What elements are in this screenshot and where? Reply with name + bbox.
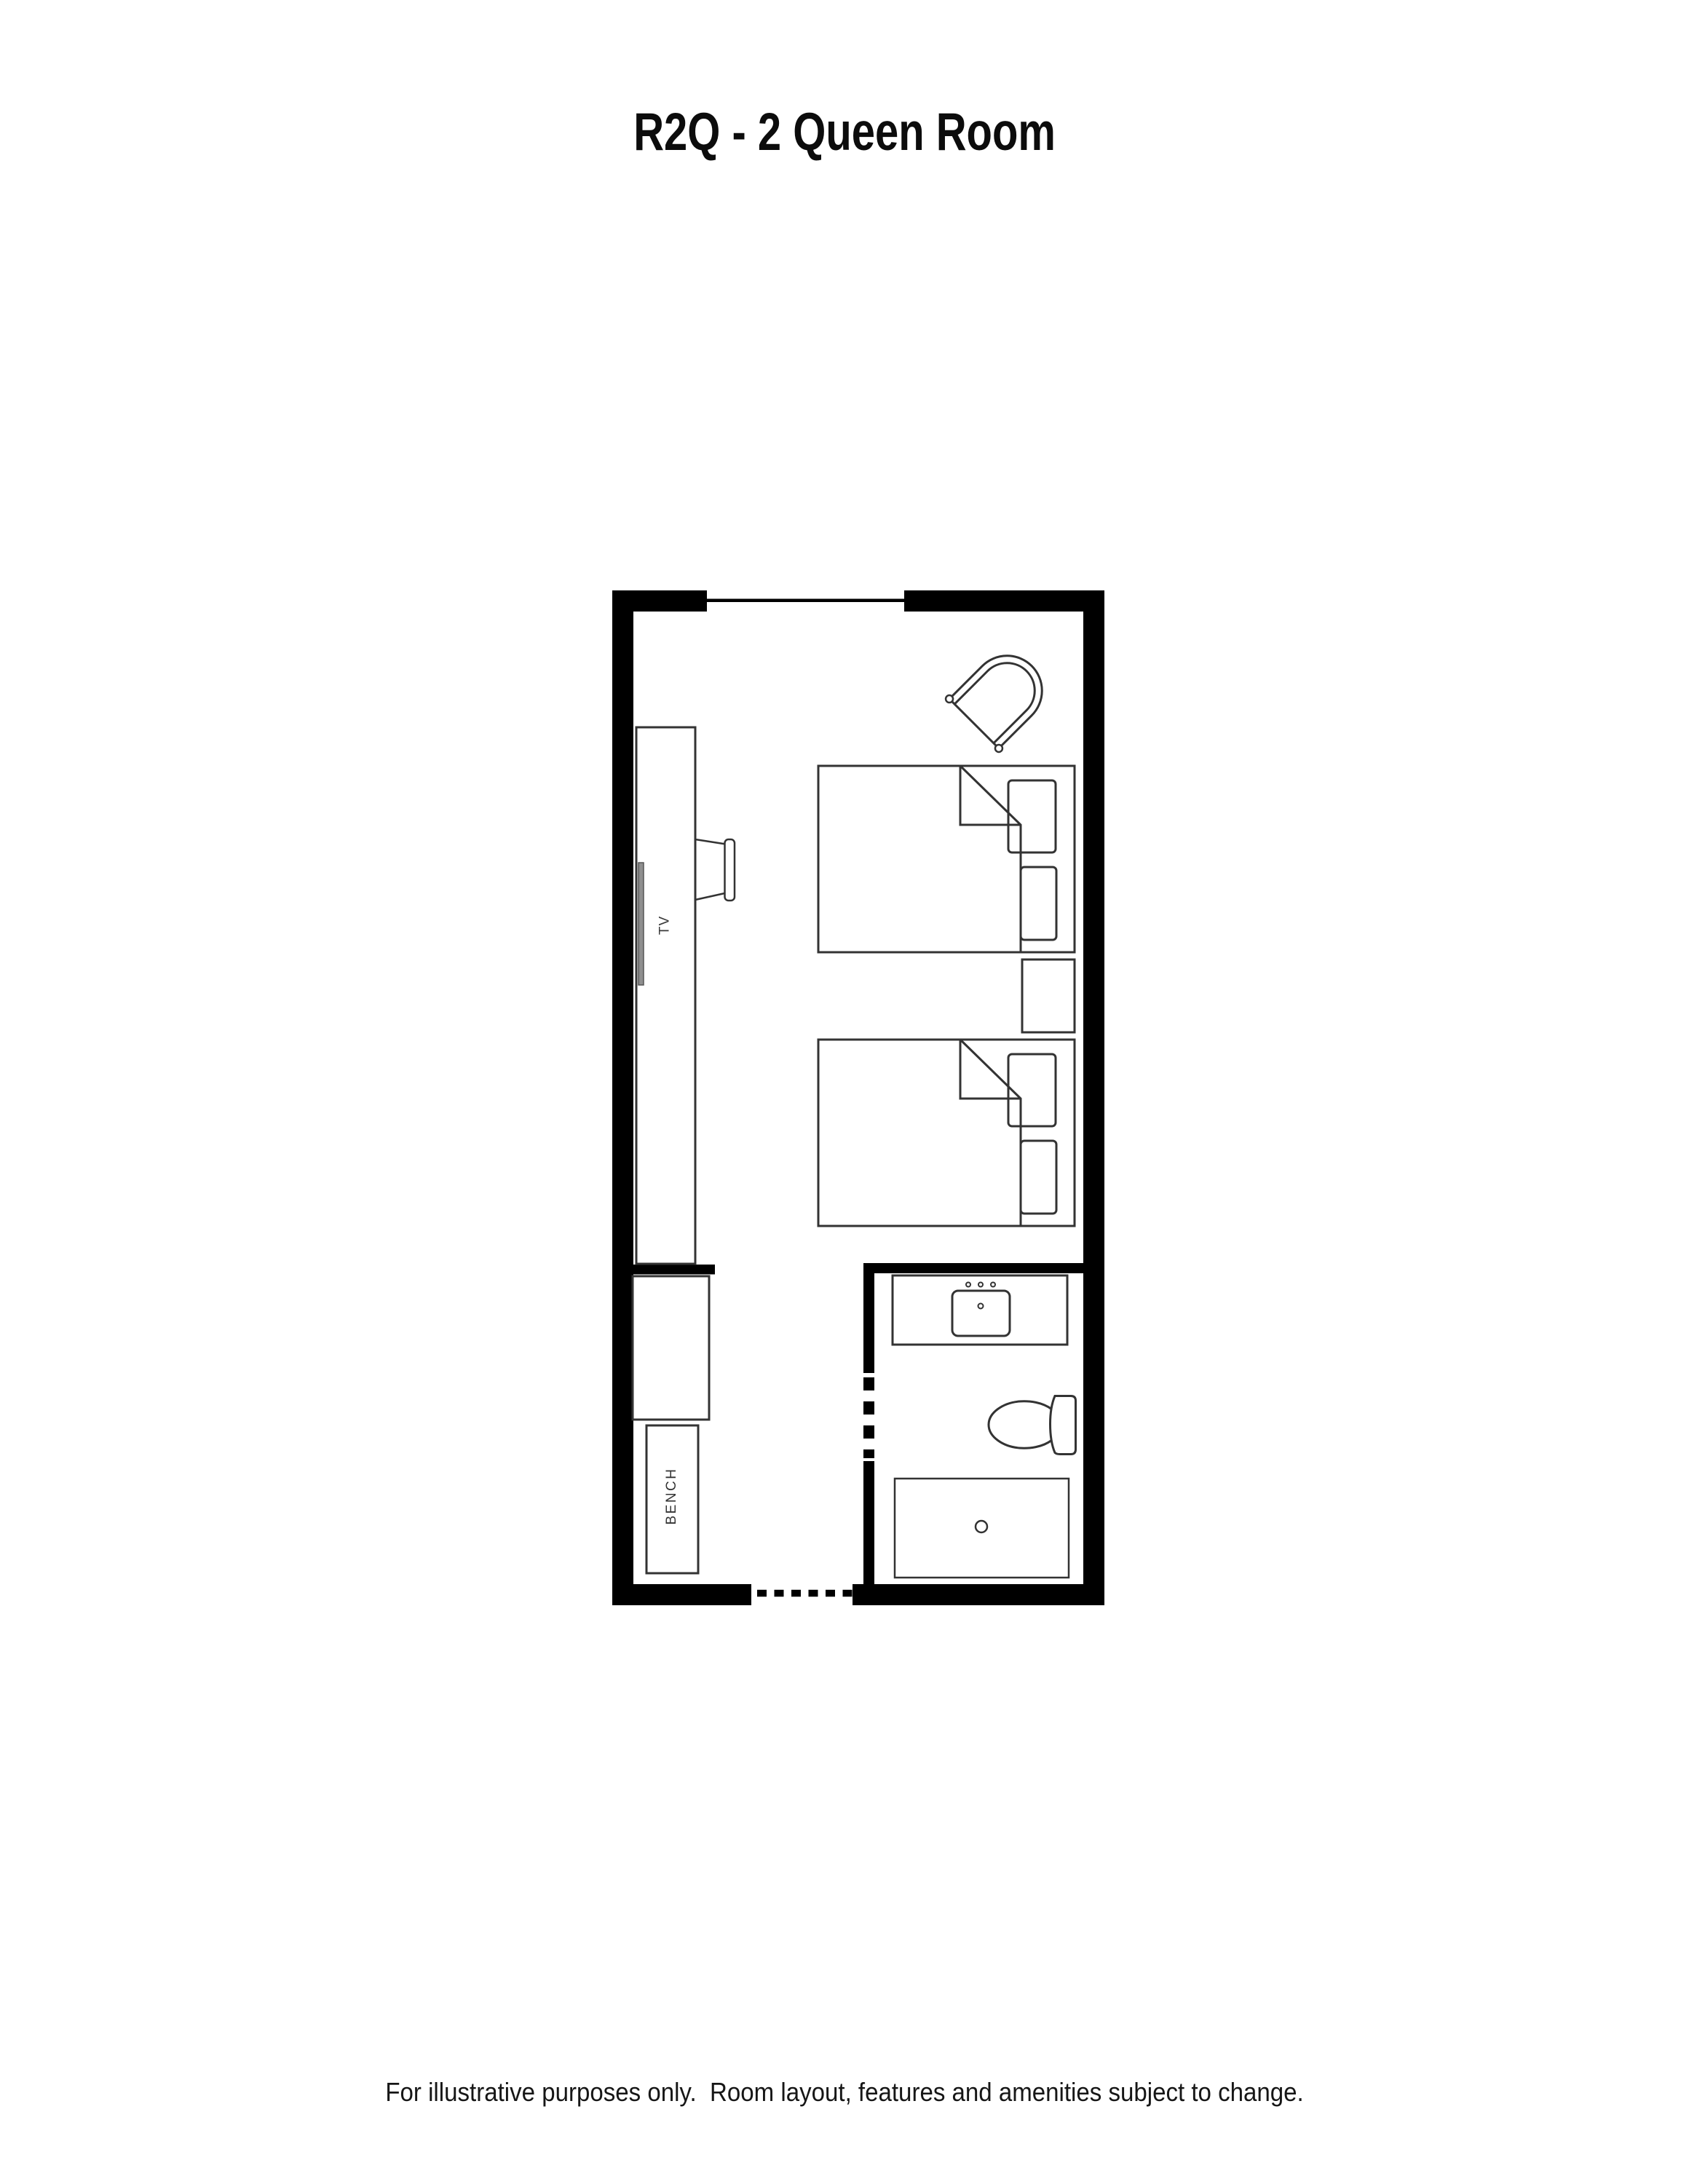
svg-text:TV: TV [657,916,673,935]
svg-text:BENCH: BENCH [664,1467,679,1524]
